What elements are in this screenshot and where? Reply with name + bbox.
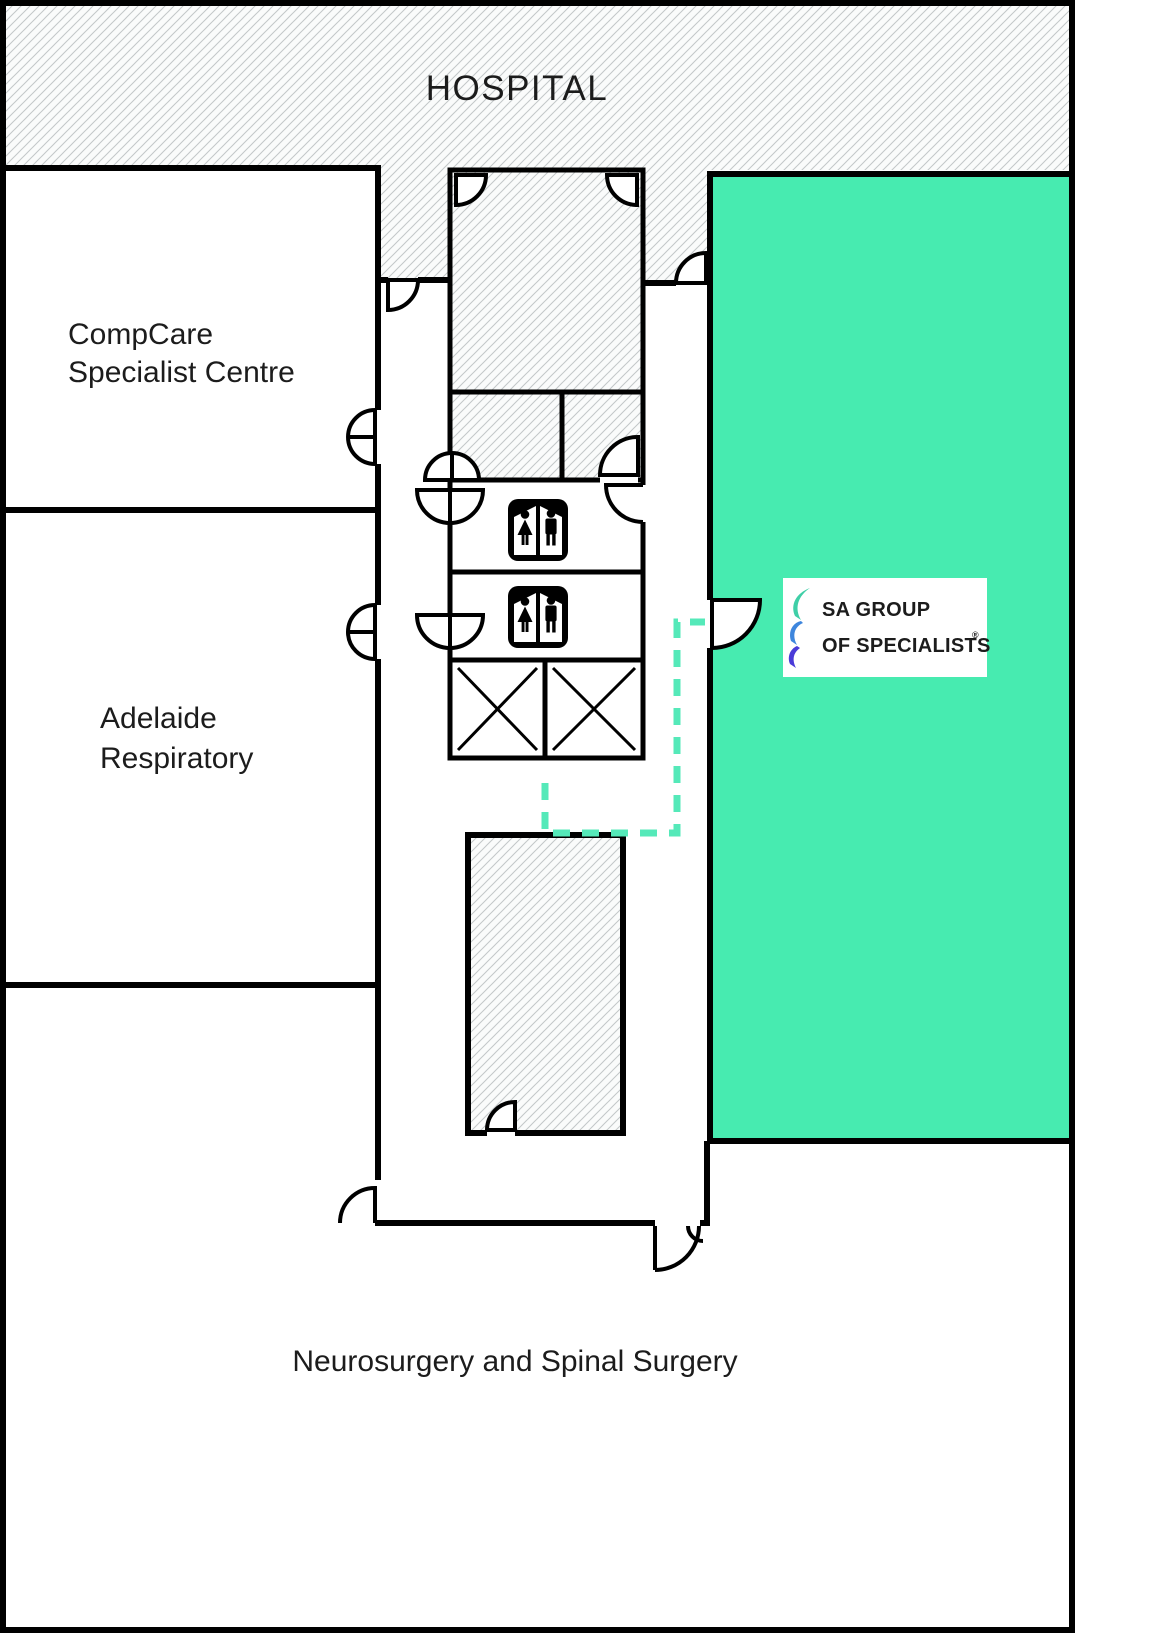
logo-line2: OF SPECIALISTS [822, 635, 991, 657]
core-vestibule-room [450, 170, 643, 392]
unisex-restroom-icon [508, 586, 568, 648]
left-rooms [3, 168, 378, 985]
adelaide-label-line1: Adelaide [100, 702, 217, 735]
floor-plan-svg: SA GROUP OF SPECIALISTS ® HOSPITAL CompC… [0, 0, 1160, 1635]
unisex-restroom-icon [508, 499, 568, 561]
compcare-label-line2: Specialist Centre [68, 356, 295, 389]
neurosurgery-label: Neurosurgery and Spinal Surgery [292, 1345, 737, 1378]
hospital-label: HOSPITAL [426, 69, 609, 108]
logo-registered-mark: ® [972, 630, 979, 640]
left-corridor-hatch [378, 168, 450, 280]
logo-line1: SA GROUP [822, 599, 930, 621]
corridor-inner-room [468, 835, 623, 1133]
adelaide-label-line2: Respiratory [100, 742, 253, 775]
logo-card [783, 578, 987, 677]
floor-plan: SA GROUP OF SPECIALISTS ® HOSPITAL CompC… [0, 0, 1160, 1635]
sa-group-logo: SA GROUP OF SPECIALISTS ® [783, 578, 991, 677]
compcare-label-line1: CompCare [68, 318, 213, 351]
